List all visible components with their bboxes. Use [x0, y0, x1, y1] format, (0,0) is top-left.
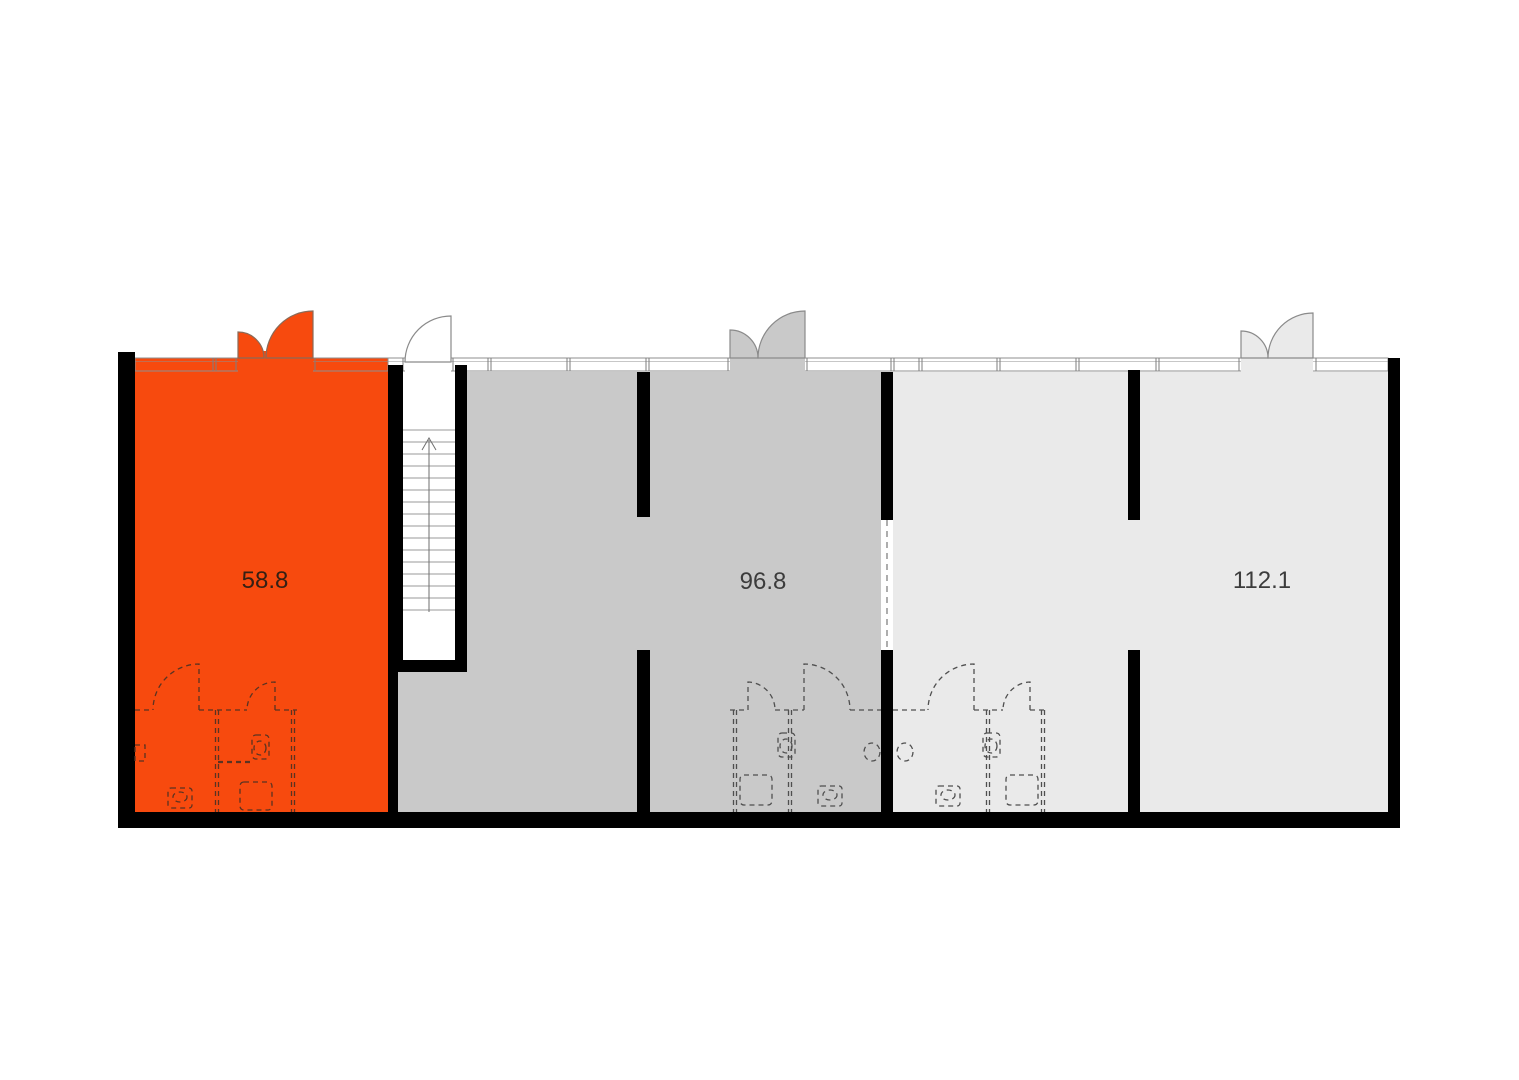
wall-partition-b-bottom	[1128, 650, 1140, 812]
floor-plan-page: 58.8 96.8 112.1	[0, 0, 1519, 1080]
wall-unit2-unit3-top	[881, 372, 893, 520]
wall-partition-a-bottom	[637, 650, 650, 812]
window-strip	[388, 358, 1388, 371]
wall-unit1-unit2	[388, 672, 398, 812]
stair-door-leaf	[405, 316, 451, 362]
unit-2-area-label: 96.8	[740, 568, 787, 595]
wall-right	[1388, 358, 1400, 816]
unit-3-door-leaf-left	[1241, 331, 1268, 358]
unit-2-door-leaf-right	[758, 311, 805, 358]
wall-left	[118, 352, 135, 828]
unit-1-door-leaf-right	[266, 311, 313, 358]
unit-2-door-leaf-left	[730, 330, 758, 358]
floor-plan: 58.8 96.8 112.1	[0, 0, 1519, 1080]
wall-bottom	[118, 812, 1400, 828]
wall-unit2-unit3-bottom	[881, 650, 893, 812]
wall-stair-right	[455, 365, 467, 672]
wall-stair-bottom	[388, 660, 467, 672]
wall-stair-left	[388, 365, 403, 672]
unit-3-area[interactable]	[893, 372, 1388, 812]
wall-partition-a-top	[637, 372, 650, 517]
doors	[238, 311, 1313, 362]
unit-1-area-label: 58.8	[242, 567, 289, 594]
unit-3-door-leaf-right	[1268, 313, 1313, 358]
wall-partition-b-top	[1128, 370, 1140, 520]
unit-1-door-leaf-left	[238, 332, 264, 358]
unit-3-area-label: 112.1	[1233, 567, 1291, 594]
